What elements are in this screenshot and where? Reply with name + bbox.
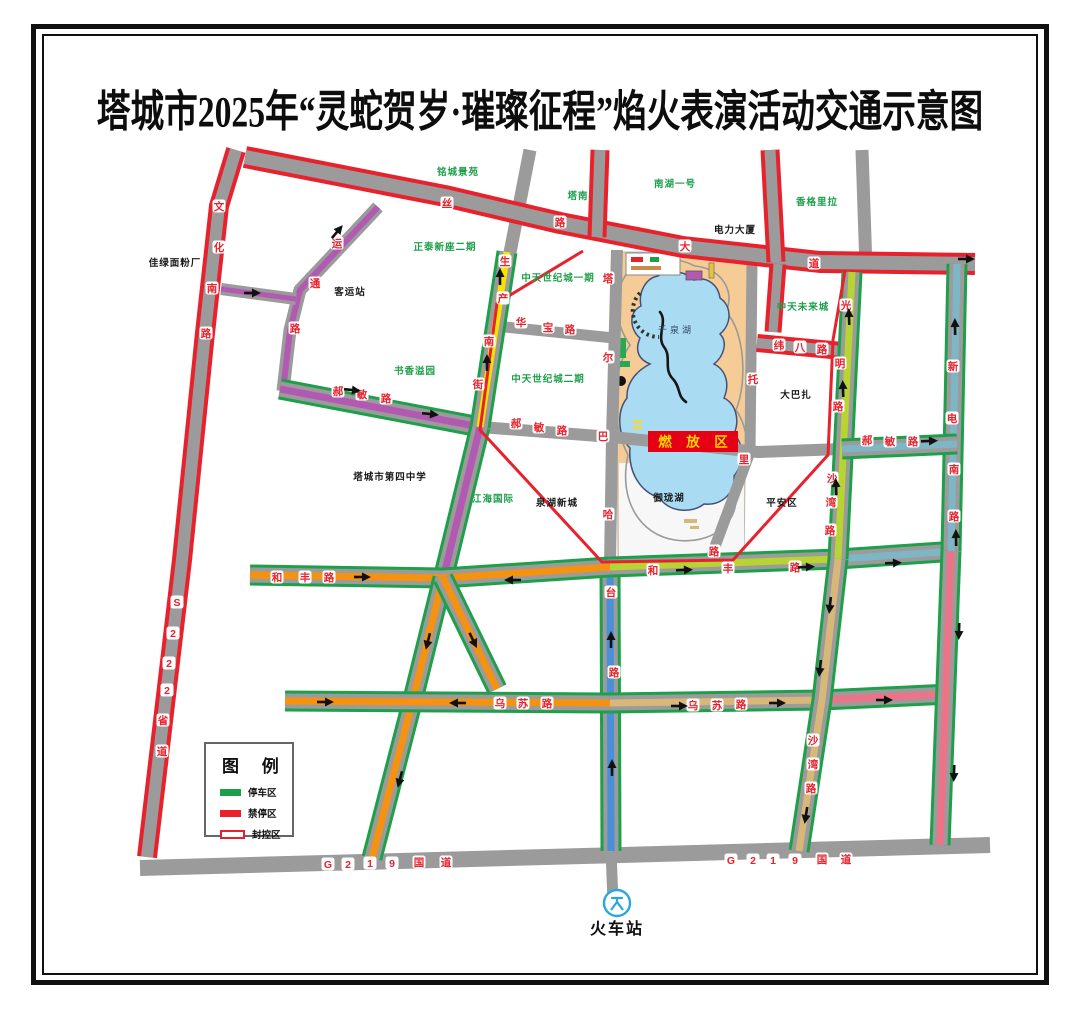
road-label: 路 bbox=[200, 327, 213, 341]
road-label: 路 bbox=[907, 435, 920, 449]
legend-item-2: 封控区 bbox=[220, 827, 292, 841]
svg-text:敏: 敏 bbox=[533, 421, 545, 434]
svg-text:国: 国 bbox=[414, 857, 425, 869]
legend-label: 停车区 bbox=[248, 785, 277, 799]
svg-text:G: G bbox=[727, 855, 735, 867]
legend-swatch-solid bbox=[220, 810, 241, 817]
road-label: 尔 bbox=[602, 351, 615, 365]
road-g219-national-road bbox=[140, 845, 990, 868]
svg-text:化: 化 bbox=[214, 241, 225, 254]
road-label: 国 bbox=[816, 853, 829, 867]
road-label: 南 bbox=[948, 463, 961, 477]
svg-text:巴: 巴 bbox=[598, 431, 609, 443]
road-label: 沙 bbox=[807, 734, 820, 748]
road-label: 敏 bbox=[533, 421, 546, 435]
road-label: 光 bbox=[840, 299, 853, 313]
svg-text:路: 路 bbox=[908, 435, 919, 448]
road-label: 丝 bbox=[441, 197, 454, 211]
road-label: 9 bbox=[789, 854, 802, 868]
road-label: 宝 bbox=[542, 321, 555, 335]
svg-text:路: 路 bbox=[565, 323, 576, 336]
area-label-compound: 中天世纪城二期 bbox=[511, 373, 585, 385]
svg-text:沙: 沙 bbox=[808, 735, 819, 747]
svg-text:道: 道 bbox=[441, 856, 452, 869]
area-label-compound: 铭城景苑 bbox=[437, 166, 479, 178]
road-label: 敏 bbox=[884, 435, 897, 449]
area-label-place: 大巴扎 bbox=[780, 389, 812, 401]
svg-text:哈: 哈 bbox=[603, 508, 614, 521]
road-label: 电 bbox=[946, 412, 959, 426]
svg-text:生: 生 bbox=[500, 255, 511, 268]
legend-item-0: 停车区 bbox=[220, 785, 292, 799]
svg-text:里: 里 bbox=[739, 454, 750, 466]
road-label: 路 bbox=[708, 545, 721, 559]
svg-text:路: 路 bbox=[736, 698, 747, 711]
road-label: 丰 bbox=[299, 571, 312, 585]
road-label: 路 bbox=[564, 323, 577, 337]
map-canvas: 千泉湖燃放区丝路大道文化南路S222省道运通路郝敏路生产南街华宝路郝敏路塔尔巴哈… bbox=[0, 0, 1080, 1009]
svg-text:敏: 敏 bbox=[884, 435, 896, 448]
road-label: S bbox=[171, 596, 184, 610]
road-label: 新 bbox=[947, 360, 960, 374]
road-label: 路 bbox=[289, 322, 302, 336]
road-label: 纬 bbox=[773, 339, 786, 353]
road-label: 道 bbox=[156, 745, 169, 759]
road-label: 文 bbox=[213, 200, 226, 214]
svg-text:路: 路 bbox=[833, 400, 844, 413]
svg-text:区: 区 bbox=[714, 435, 728, 450]
road-haomin-road-east bbox=[842, 444, 957, 449]
svg-text:郝: 郝 bbox=[511, 417, 522, 430]
area-label-compound: 香格里拉 bbox=[795, 196, 838, 208]
svg-text:路: 路 bbox=[555, 216, 566, 229]
svg-text:电: 电 bbox=[947, 412, 958, 425]
area-label-place: 客运站 bbox=[333, 286, 366, 298]
svg-text:S: S bbox=[173, 597, 180, 609]
road-label: 湾 bbox=[807, 758, 820, 772]
road-hefeng-road-east bbox=[838, 551, 957, 559]
svg-text:八: 八 bbox=[794, 342, 806, 354]
area-label-compound: 南湖一号 bbox=[654, 178, 696, 190]
area-label-place: 平安区 bbox=[766, 497, 798, 509]
area-label-compound: 正泰新座二期 bbox=[413, 241, 476, 253]
road-label: 1 bbox=[364, 857, 377, 871]
road-label: 路 bbox=[541, 697, 554, 711]
road-label: 南 bbox=[206, 282, 219, 296]
svg-text:路: 路 bbox=[709, 545, 720, 558]
area-label-compound: 书香溢园 bbox=[394, 365, 436, 377]
road-label: 乌 bbox=[494, 697, 507, 711]
road-label: 国 bbox=[413, 856, 426, 870]
svg-text:尔: 尔 bbox=[602, 351, 614, 364]
road-yuntong-road bbox=[283, 207, 378, 391]
road-label: 2 bbox=[747, 854, 760, 868]
svg-text:丰: 丰 bbox=[300, 571, 311, 584]
road-label: 路 bbox=[554, 216, 567, 230]
svg-text:路: 路 bbox=[825, 524, 836, 537]
area-label-compound: 塔南 bbox=[567, 190, 588, 202]
svg-text:路: 路 bbox=[817, 343, 828, 356]
road-label: 里 bbox=[738, 453, 751, 467]
road-label: 路 bbox=[323, 571, 336, 585]
road-xianggelila-west-rd bbox=[770, 150, 776, 262]
road-label: 路 bbox=[816, 343, 829, 357]
svg-text:南: 南 bbox=[207, 282, 218, 295]
road-label: 哈 bbox=[602, 508, 615, 522]
svg-text:路: 路 bbox=[557, 424, 568, 437]
svg-text:国: 国 bbox=[817, 854, 828, 866]
road-label: 大 bbox=[679, 240, 692, 254]
svg-text:南: 南 bbox=[484, 335, 495, 348]
svg-text:路: 路 bbox=[542, 697, 553, 710]
road-label: 路 bbox=[948, 510, 961, 524]
svg-text:光: 光 bbox=[840, 299, 852, 312]
road-xindian-pink-south bbox=[940, 551, 951, 845]
svg-text:新: 新 bbox=[948, 360, 959, 373]
svg-text:和: 和 bbox=[647, 564, 659, 577]
road-label: 和 bbox=[647, 564, 660, 578]
road-label: G bbox=[725, 854, 738, 868]
svg-text:丝: 丝 bbox=[442, 197, 453, 210]
road-label: 9 bbox=[386, 857, 399, 871]
road-label: 2 bbox=[342, 858, 355, 872]
road-label: 郝 bbox=[861, 434, 874, 448]
svg-text:宝: 宝 bbox=[543, 321, 554, 334]
road-label: 郝 bbox=[332, 385, 345, 399]
svg-text:郝: 郝 bbox=[862, 434, 873, 447]
svg-text:大: 大 bbox=[680, 240, 691, 253]
svg-text:路: 路 bbox=[381, 392, 392, 405]
road-label: 乌 bbox=[687, 699, 700, 713]
area-label-place: 电力大厦 bbox=[714, 224, 756, 236]
road-label: 路 bbox=[556, 424, 569, 438]
svg-text:文: 文 bbox=[213, 200, 225, 213]
road-xindian-south-road bbox=[951, 264, 957, 551]
road-label: 化 bbox=[213, 241, 226, 255]
svg-text:明: 明 bbox=[835, 358, 846, 370]
road-label: 苏 bbox=[517, 697, 530, 711]
svg-text:2: 2 bbox=[164, 685, 170, 697]
road-label: 巴 bbox=[597, 430, 610, 444]
road-nanhu-rd bbox=[597, 150, 600, 237]
road-diagonal-left bbox=[372, 578, 443, 858]
svg-text:通: 通 bbox=[310, 278, 321, 290]
svg-text:路: 路 bbox=[324, 571, 335, 584]
road-label: 通 bbox=[309, 277, 322, 291]
road-label: 2 bbox=[161, 684, 174, 698]
legend-label: 禁停区 bbox=[248, 806, 277, 820]
svg-text:纬: 纬 bbox=[774, 339, 785, 352]
svg-text:放: 放 bbox=[685, 434, 700, 450]
svg-text:湾: 湾 bbox=[808, 758, 819, 771]
road-label: 道 bbox=[808, 257, 821, 271]
area-label-place: 佳绿面粉厂 bbox=[149, 257, 202, 269]
road-label: 2 bbox=[163, 657, 176, 671]
road-label: 苏 bbox=[711, 699, 724, 713]
svg-text:1: 1 bbox=[770, 855, 776, 867]
svg-text:路: 路 bbox=[609, 666, 620, 679]
svg-text:2: 2 bbox=[750, 855, 756, 867]
road-label: 托 bbox=[747, 373, 760, 387]
area-label-place: 泉湖新城 bbox=[535, 497, 578, 509]
svg-text:台: 台 bbox=[606, 586, 617, 599]
legend-swatch-outline bbox=[220, 830, 245, 839]
svg-text:乌: 乌 bbox=[495, 697, 506, 710]
svg-text:道: 道 bbox=[841, 853, 852, 866]
road-label: 路 bbox=[805, 782, 818, 796]
road-label: 省 bbox=[157, 714, 170, 728]
road-red-stub bbox=[773, 264, 778, 332]
svg-text:道: 道 bbox=[809, 257, 820, 270]
lake-label: 千泉湖 bbox=[658, 324, 694, 335]
road-label: 台 bbox=[605, 586, 618, 600]
svg-text:2: 2 bbox=[170, 628, 176, 640]
lake-shape bbox=[620, 272, 742, 510]
road-label: 和 bbox=[271, 571, 284, 585]
road-label: 华 bbox=[515, 316, 528, 330]
road-label: 1 bbox=[767, 854, 780, 868]
legend: 图 例 停车区禁停区封控区 bbox=[204, 742, 294, 837]
legend-title: 图 例 bbox=[222, 752, 292, 777]
svg-text:乌: 乌 bbox=[688, 699, 699, 712]
svg-text:丰: 丰 bbox=[723, 562, 734, 575]
legend-swatch-solid bbox=[220, 789, 241, 796]
svg-text:路: 路 bbox=[806, 782, 817, 795]
svg-text:湾: 湾 bbox=[826, 496, 837, 509]
road-label: 道 bbox=[840, 853, 853, 867]
svg-text:苏: 苏 bbox=[518, 697, 529, 710]
svg-text:产: 产 bbox=[498, 292, 509, 305]
road-taerbahatai-mid bbox=[610, 438, 612, 566]
svg-text:华: 华 bbox=[516, 316, 527, 329]
svg-text:燃: 燃 bbox=[658, 434, 672, 450]
road-label: 南 bbox=[483, 335, 496, 349]
road-label: 路 bbox=[832, 400, 845, 414]
road-label: 路 bbox=[824, 524, 837, 538]
road-label: 道 bbox=[440, 856, 453, 870]
railway-station-icon: 火车站 bbox=[590, 890, 644, 938]
svg-text:苏: 苏 bbox=[712, 699, 723, 712]
svg-text:9: 9 bbox=[389, 858, 395, 870]
svg-text:2: 2 bbox=[166, 658, 172, 670]
road-label: 街 bbox=[472, 378, 485, 392]
road-label: 八 bbox=[794, 341, 807, 355]
road-label: 路 bbox=[735, 698, 748, 712]
svg-text:托: 托 bbox=[748, 373, 759, 386]
road-label: 产 bbox=[497, 292, 510, 306]
svg-text:1: 1 bbox=[367, 858, 373, 870]
road-label: 塔 bbox=[602, 272, 615, 286]
svg-text:道: 道 bbox=[157, 745, 168, 758]
svg-text:街: 街 bbox=[472, 378, 484, 391]
svg-text:塔: 塔 bbox=[603, 272, 614, 285]
road-label: 郝 bbox=[510, 417, 523, 431]
traffic-map-page: 塔城市2025年“灵蛇贺岁·璀璨征程”焰火表演活动交通示意图 千泉湖燃放区丝路大… bbox=[0, 0, 1080, 1009]
svg-text:路: 路 bbox=[201, 327, 212, 340]
road-label: 丰 bbox=[722, 562, 735, 576]
svg-text:路: 路 bbox=[949, 510, 960, 523]
area-label-compound: 中天世纪城一期 bbox=[521, 272, 595, 284]
road-label: 湾 bbox=[825, 496, 838, 510]
railway-station-label: 火车站 bbox=[590, 919, 644, 938]
svg-text:运: 运 bbox=[332, 238, 343, 250]
svg-text:路: 路 bbox=[290, 322, 301, 335]
svg-text:2: 2 bbox=[345, 859, 351, 871]
road-label: 2 bbox=[167, 627, 180, 641]
svg-text:9: 9 bbox=[792, 855, 798, 867]
area-label-place: 御珑湖 bbox=[652, 492, 685, 504]
svg-text:郝: 郝 bbox=[333, 385, 344, 398]
firing-zone-banner: 燃放区 bbox=[648, 431, 738, 452]
svg-text:G: G bbox=[324, 859, 332, 871]
road-label: 路 bbox=[380, 392, 393, 406]
legend-items: 停车区禁停区封控区 bbox=[220, 785, 292, 841]
road-label: 明 bbox=[834, 357, 847, 371]
legend-item-1: 禁停区 bbox=[220, 806, 292, 820]
road-label: 生 bbox=[499, 255, 512, 269]
svg-text:和: 和 bbox=[271, 571, 283, 584]
legend-label: 封控区 bbox=[252, 827, 281, 841]
svg-text:省: 省 bbox=[157, 714, 169, 727]
road-label: 路 bbox=[608, 666, 621, 680]
road-xianggelila-east-rd bbox=[862, 150, 866, 268]
svg-text:南: 南 bbox=[949, 463, 960, 476]
area-label-compound: 中天未来城 bbox=[777, 301, 830, 313]
road-label: G bbox=[322, 858, 335, 872]
area-label-compound: 江海国际 bbox=[472, 493, 514, 505]
area-label-place: 塔城市第四中学 bbox=[353, 471, 427, 483]
